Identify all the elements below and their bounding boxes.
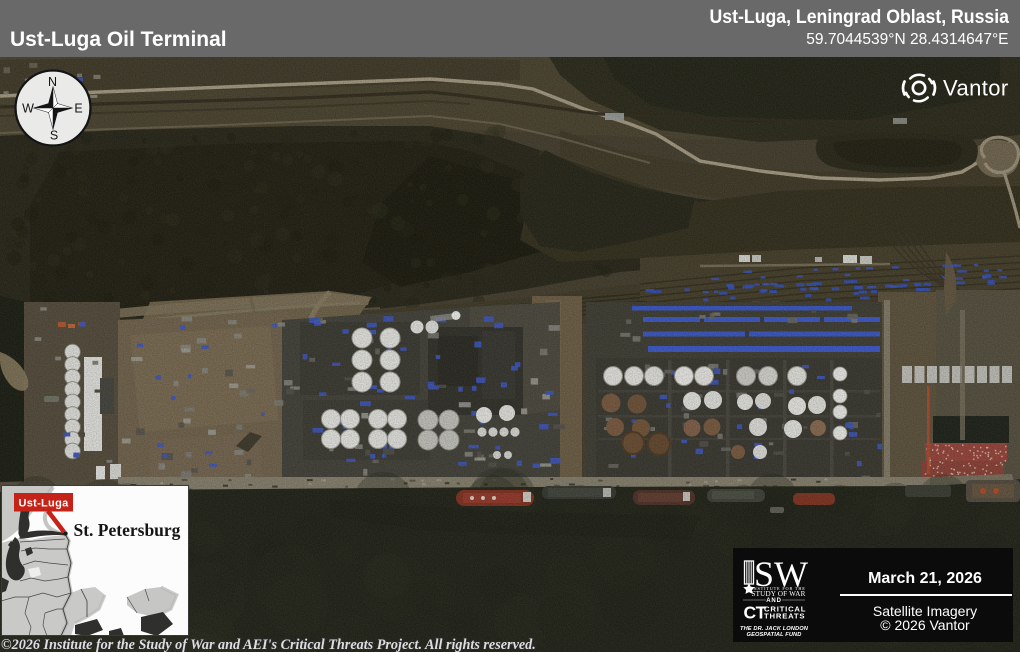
svg-text:Vantor: Vantor (943, 76, 1009, 101)
svg-text:W: W (22, 102, 34, 116)
svg-text:STUDY OF WAR: STUDY OF WAR (751, 590, 805, 598)
svg-text:St. Petersburg: St. Petersburg (74, 520, 181, 540)
svg-text:N: N (48, 75, 57, 89)
svg-text:S: S (50, 129, 58, 143)
svg-text:THREATS: THREATS (764, 612, 805, 621)
svg-text:AND: AND (766, 598, 781, 604)
svg-text:E: E (74, 102, 82, 116)
svg-text:Ust-Luga: Ust-Luga (18, 498, 69, 510)
